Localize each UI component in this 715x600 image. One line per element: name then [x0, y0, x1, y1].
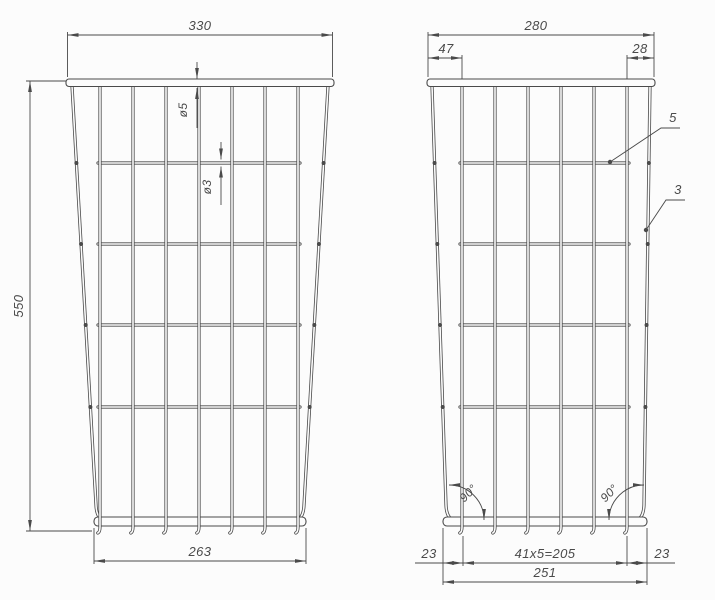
dim-label-23: 23 [420, 546, 437, 561]
wire-joint-nub [322, 161, 326, 165]
dim-label-330: 330 [189, 18, 212, 33]
dim-label-550: 550 [11, 294, 26, 317]
diameter-label: ø5 [176, 103, 190, 118]
dim-label-280: 280 [524, 18, 548, 33]
wire-joint-nub [646, 242, 650, 246]
dim-label-47: 47 [438, 41, 454, 56]
diameter-label: ø3 [200, 180, 214, 195]
wire-joint-nub [312, 323, 316, 327]
item-number-label: 3 [674, 182, 682, 197]
wire-joint-nub [435, 242, 439, 246]
wire-joint-nub [438, 323, 442, 327]
technical-drawing: 33028047282632341x5=20523251550ø5ø35390°… [0, 0, 715, 600]
dim-label-251: 251 [533, 565, 557, 580]
top-rim-bar [66, 79, 334, 87]
wire-joint-nub [645, 323, 649, 327]
dim-label-23: 23 [653, 546, 670, 561]
wire-joint-nub [79, 242, 83, 246]
dim-label-41x5=205: 41x5=205 [515, 546, 576, 561]
wire-joint-nub [74, 161, 78, 165]
wire-joint-nub [308, 405, 312, 409]
wire-joint-nub [643, 405, 647, 409]
wire-joint-nub [84, 323, 88, 327]
dim-label-28: 28 [631, 41, 648, 56]
wire-joint-nub [317, 242, 321, 246]
wire-joint-nub [441, 405, 445, 409]
wire-joint-nub [647, 161, 651, 165]
top-rim-bar [427, 79, 655, 87]
wire-joint-nub [433, 161, 437, 165]
wire-joint-nub [88, 405, 92, 409]
dim-label-263: 263 [188, 544, 212, 559]
drawing-canvas: 33028047282632341x5=20523251550ø5ø35390°… [0, 0, 715, 600]
item-number-label: 5 [669, 110, 677, 125]
leader-dot [608, 160, 612, 164]
bottom-frame-bar [443, 517, 647, 526]
leader-dot [644, 228, 648, 232]
